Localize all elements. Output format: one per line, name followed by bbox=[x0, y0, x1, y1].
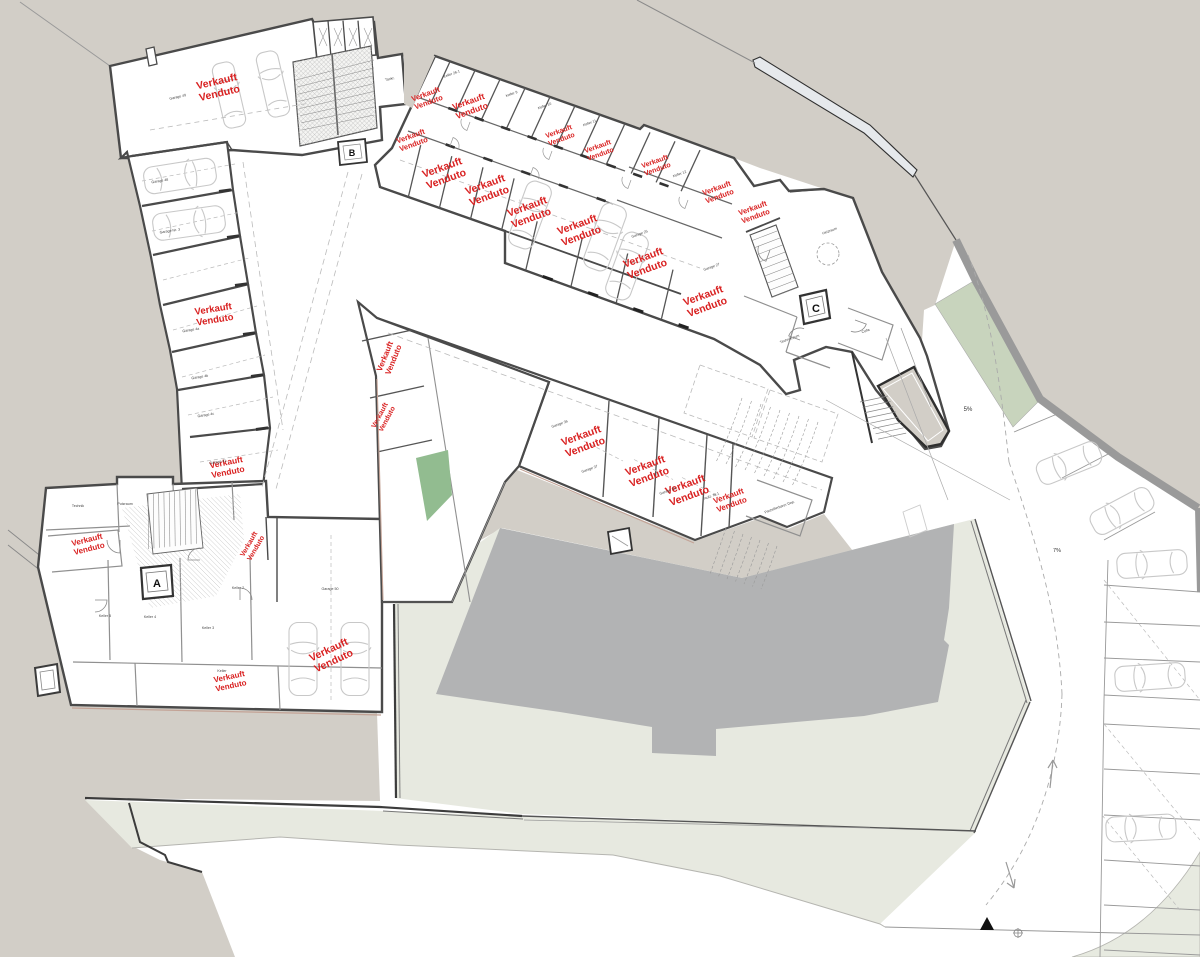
svg-text:Technik: Technik bbox=[72, 504, 84, 508]
svg-text:Keller 3: Keller 3 bbox=[202, 626, 214, 630]
svg-text:B: B bbox=[349, 148, 356, 158]
svg-text:A: A bbox=[153, 578, 161, 590]
svg-text:Keller 4: Keller 4 bbox=[144, 615, 156, 619]
svg-text:5%: 5% bbox=[964, 407, 973, 413]
svg-text:Keller 5: Keller 5 bbox=[99, 614, 111, 618]
svg-text:Garage 50: Garage 50 bbox=[322, 587, 339, 591]
svg-text:7%: 7% bbox=[1053, 548, 1061, 554]
svg-text:C: C bbox=[812, 303, 820, 315]
svg-text:Putzraum: Putzraum bbox=[117, 502, 132, 506]
